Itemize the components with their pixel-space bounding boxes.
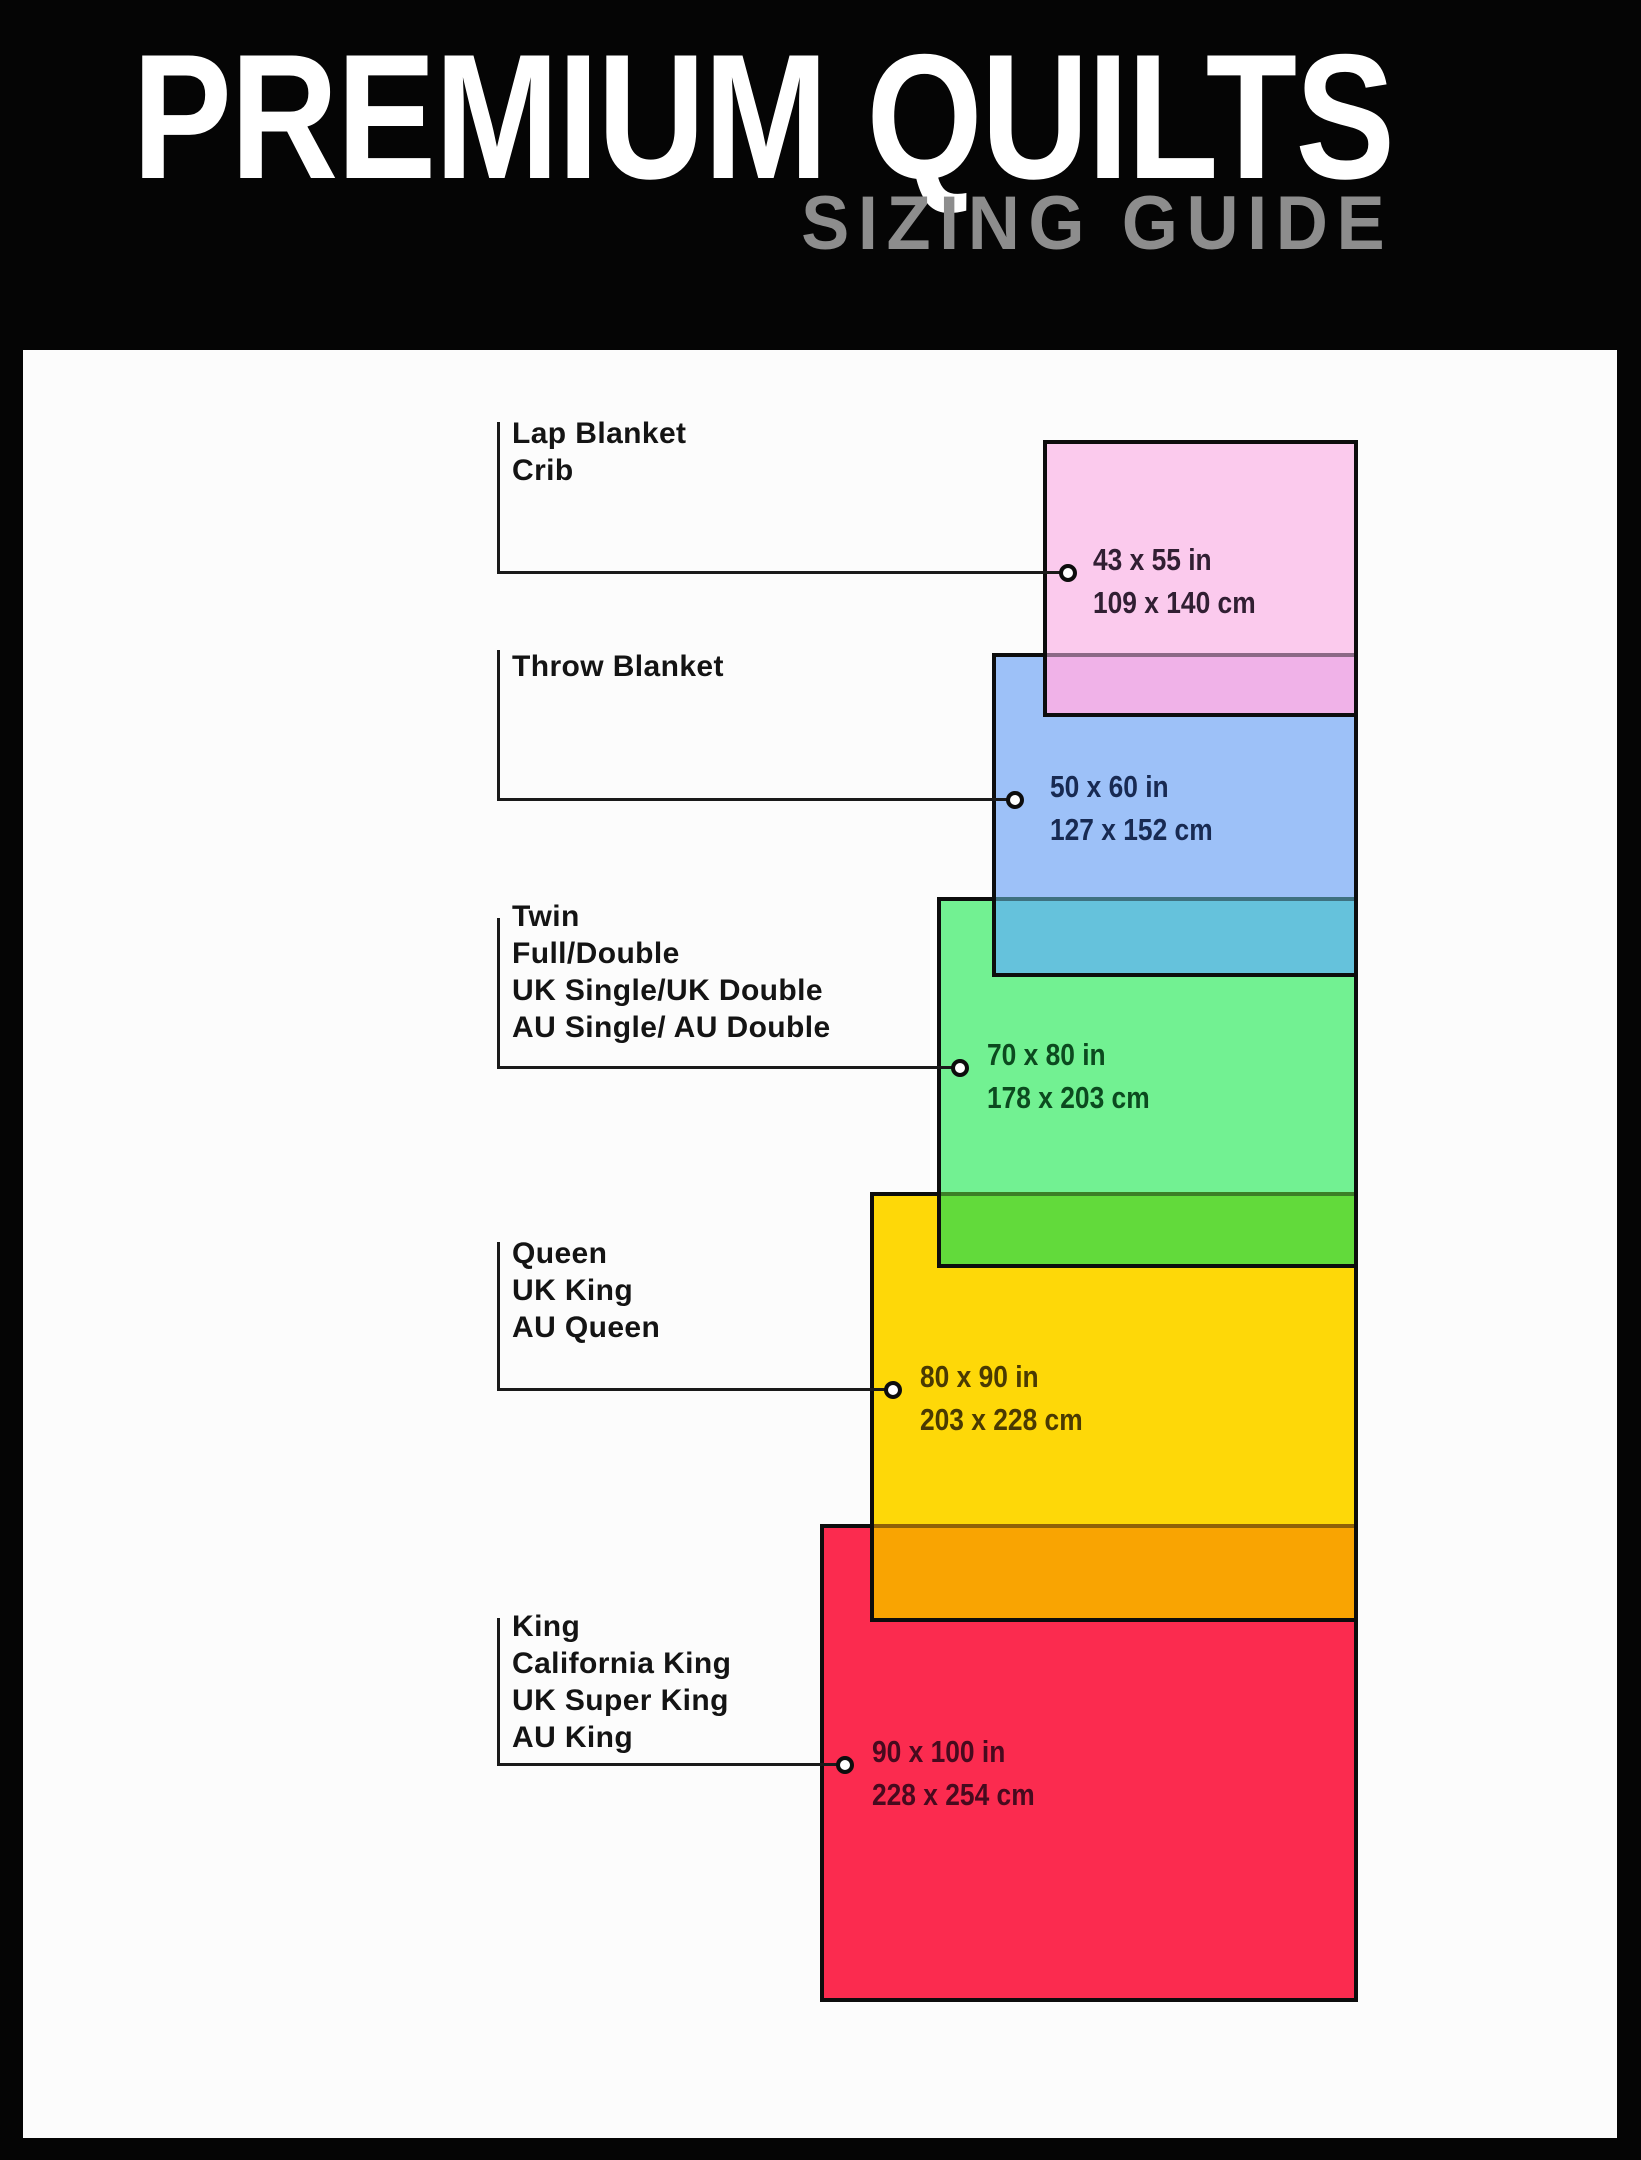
label-line: AU King [512, 1719, 731, 1756]
size-label-throw: Throw Blanket [512, 648, 724, 685]
size-label-twin-full: Twin Full/Double UK Single/UK Double AU … [512, 898, 831, 1046]
label-line: Crib [512, 452, 686, 489]
label-line: King [512, 1608, 731, 1645]
overlap-lap-throw [1047, 653, 1354, 713]
cm-value: 127 x 152 cm [1050, 808, 1213, 851]
label-line: Queen [512, 1235, 660, 1272]
inches-value: 70 x 80 in [987, 1033, 1150, 1076]
size-label-lap-crib: Lap Blanket Crib [512, 415, 686, 489]
cm-value: 228 x 254 cm [872, 1773, 1035, 1816]
inches-value: 80 x 90 in [920, 1355, 1083, 1398]
connector-dot-throw [1006, 791, 1024, 809]
label-line: California King [512, 1645, 731, 1682]
connector-dot-twin [951, 1059, 969, 1077]
overlap-twin-queen [941, 1192, 1354, 1264]
size-value-queen: 80 x 90 in 203 x 228 cm [920, 1355, 1083, 1441]
connector-hline-throw [497, 798, 1015, 801]
size-value-king: 90 x 100 in 228 x 254 cm [872, 1730, 1035, 1816]
page-subtitle: SIZING GUIDE [801, 186, 1393, 262]
label-line: Twin [512, 898, 831, 935]
label-line: AU Queen [512, 1309, 660, 1346]
overlap-queen-king [874, 1524, 1354, 1618]
label-line: Lap Blanket [512, 415, 686, 452]
overlap-throw-twin [996, 897, 1354, 973]
connector-hline-lap [497, 571, 1068, 574]
connector-dot-king [836, 1756, 854, 1774]
inches-value: 50 x 60 in [1050, 765, 1213, 808]
connector-hline-twin [497, 1066, 960, 1069]
size-value-throw: 50 x 60 in 127 x 152 cm [1050, 765, 1213, 851]
connector-vline-twin [497, 918, 500, 1068]
connector-hline-queen [497, 1388, 893, 1391]
size-label-queen: Queen UK King AU Queen [512, 1235, 660, 1346]
cm-value: 109 x 140 cm [1093, 581, 1256, 624]
size-label-king: King California King UK Super King AU Ki… [512, 1608, 731, 1756]
label-line: Throw Blanket [512, 648, 724, 685]
connector-dot-queen [884, 1381, 902, 1399]
size-value-twin: 70 x 80 in 178 x 203 cm [987, 1033, 1150, 1119]
label-line: UK Super King [512, 1682, 731, 1719]
infographic-root: PREMIUM QUILTS SIZING GUIDE Lap Bl [0, 0, 1641, 2160]
size-value-lap: 43 x 55 in 109 x 140 cm [1093, 538, 1256, 624]
connector-vline-lap [497, 422, 500, 573]
inches-value: 43 x 55 in [1093, 538, 1256, 581]
connector-dot-lap [1059, 564, 1077, 582]
label-line: Full/Double [512, 935, 831, 972]
connector-vline-throw [497, 650, 500, 800]
cm-value: 203 x 228 cm [920, 1398, 1083, 1441]
inches-value: 90 x 100 in [872, 1730, 1035, 1773]
sizing-diagram: Lap Blanket Crib Throw Blanket Twin Full… [23, 350, 1617, 2138]
connector-vline-king [497, 1618, 500, 1765]
header: PREMIUM QUILTS SIZING GUIDE [0, 0, 1641, 350]
label-line: UK Single/UK Double [512, 972, 831, 1009]
connector-vline-queen [497, 1242, 500, 1390]
label-line: AU Single/ AU Double [512, 1009, 831, 1046]
connector-hline-king [497, 1763, 845, 1766]
page-title: PREMIUM QUILTS [132, 28, 1393, 206]
label-line: UK King [512, 1272, 660, 1309]
cm-value: 178 x 203 cm [987, 1076, 1150, 1119]
